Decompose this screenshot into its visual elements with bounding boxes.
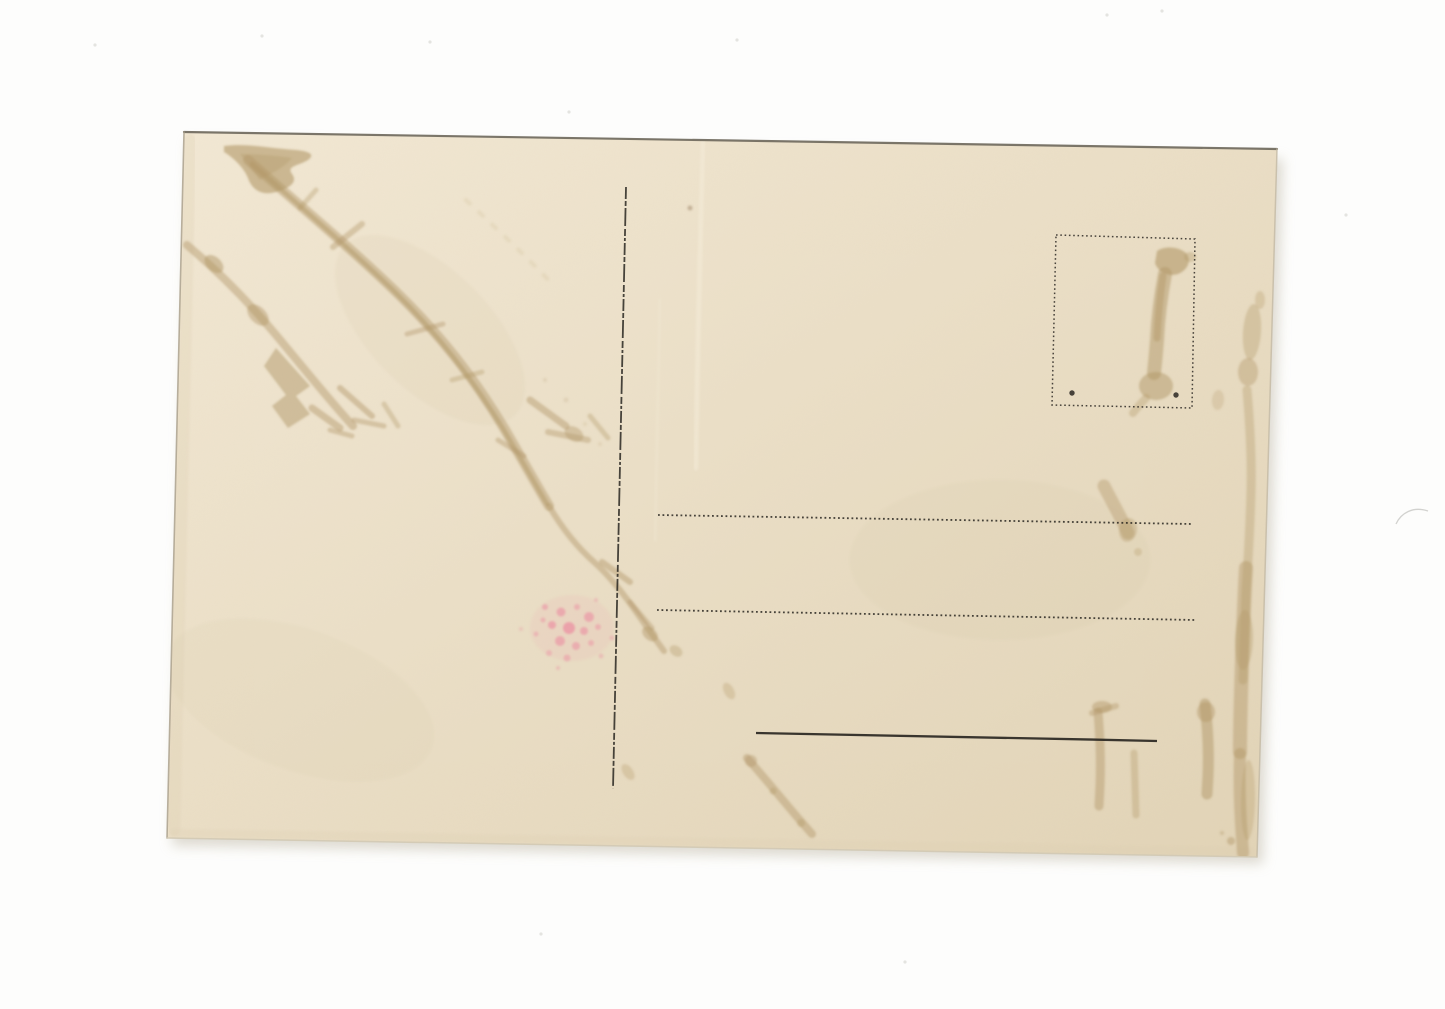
dust-speck xyxy=(1344,213,1347,216)
pink-stain-speck xyxy=(599,654,604,659)
pink-stain-speck xyxy=(572,642,580,650)
pink-stain-speck xyxy=(574,604,580,610)
pink-stain-speck xyxy=(519,627,523,631)
postcard-back-photo xyxy=(0,0,1445,1009)
stain-mark xyxy=(1134,753,1136,815)
pink-stain-speck xyxy=(534,632,539,637)
stain-blotch xyxy=(1255,291,1265,309)
stain-mark xyxy=(1098,712,1100,806)
pink-stain-speck xyxy=(580,627,588,635)
stain-dot xyxy=(745,755,757,767)
stain-blotch xyxy=(1197,702,1215,722)
stain-dot xyxy=(1220,831,1224,835)
stain-dot xyxy=(688,206,693,211)
pink-stain-speck xyxy=(557,608,566,617)
pink-stain-speck xyxy=(555,636,565,646)
stamp-box-dot-right xyxy=(1173,392,1178,397)
dust-speck xyxy=(1105,13,1108,16)
pink-stain-speck xyxy=(595,624,601,630)
pink-stain-speck xyxy=(584,612,594,622)
pink-stain-speck xyxy=(548,621,556,629)
stain-blotch xyxy=(1092,701,1112,713)
pink-stain-speck xyxy=(541,618,546,623)
stain-dot xyxy=(583,422,587,426)
stain-dot xyxy=(770,788,777,795)
dust-speck xyxy=(735,38,738,41)
stain-dot xyxy=(1134,548,1142,556)
stain-dot xyxy=(1227,837,1235,845)
pink-stain-speck xyxy=(542,604,548,610)
stamp-box-dot-left xyxy=(1069,390,1074,395)
pink-stain-speck xyxy=(556,666,560,670)
dust-speck xyxy=(539,932,542,935)
pink-stain-speck xyxy=(564,655,571,662)
stain-dot xyxy=(598,442,602,446)
dust-speck xyxy=(428,40,431,43)
dust-speck xyxy=(260,34,263,37)
pink-stain-speck xyxy=(594,598,598,602)
pink-stain-speck xyxy=(588,640,594,646)
pink-stain-speck xyxy=(546,650,552,656)
pink-stain-speck xyxy=(610,636,615,641)
stain-dot xyxy=(797,819,805,827)
dust-speck xyxy=(903,960,906,963)
dust-speck xyxy=(567,110,570,113)
dust-speck xyxy=(1160,9,1163,12)
dust-speck xyxy=(93,43,96,46)
stain-blotch xyxy=(1238,358,1258,386)
photo-stage xyxy=(0,0,1445,1009)
stain-dot xyxy=(543,378,547,382)
pink-stain-speck xyxy=(563,622,575,634)
stain-dot xyxy=(564,398,569,403)
